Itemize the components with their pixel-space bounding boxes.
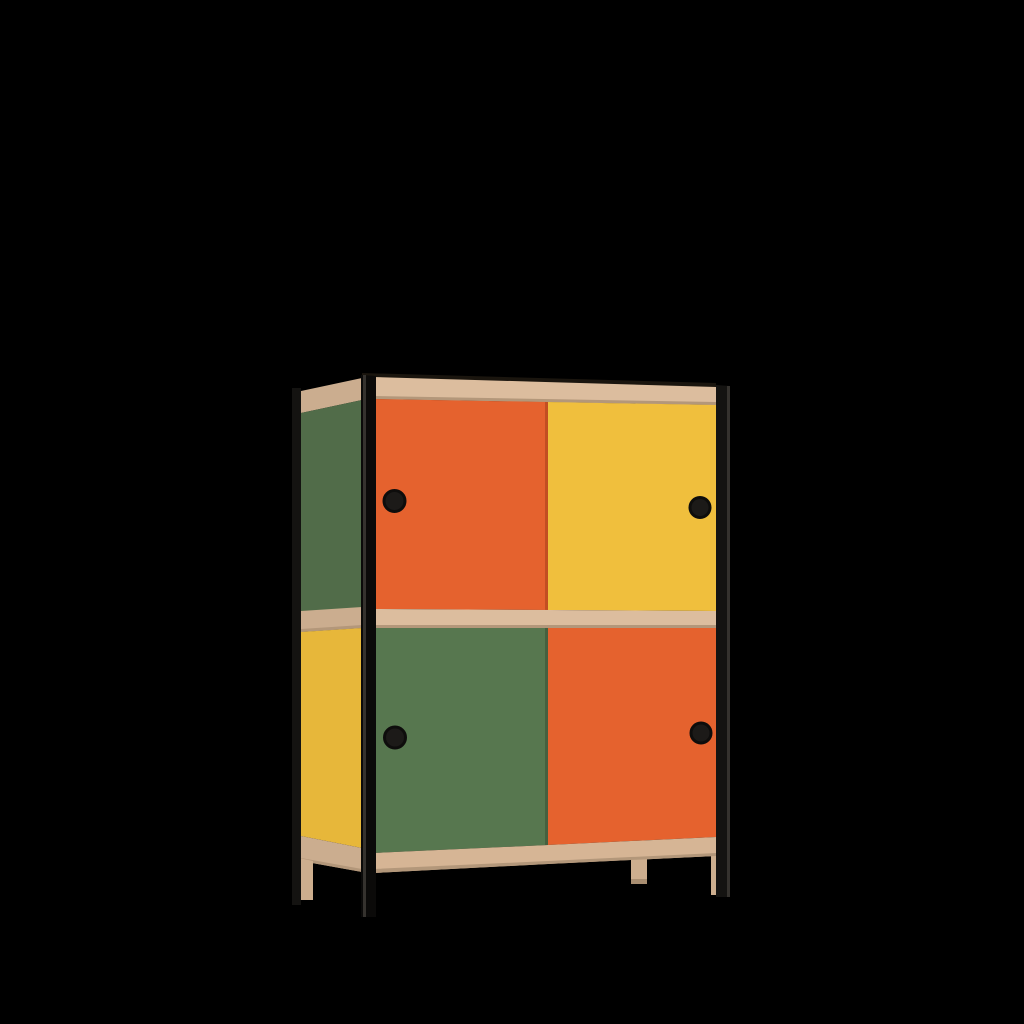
cabinet-render: [0, 0, 1024, 1024]
knob-bottom-right: [691, 723, 711, 743]
knob-bottom-left: [385, 727, 406, 748]
knob-top-right: [690, 498, 710, 518]
side-panel-green: [301, 400, 362, 613]
side-panel-yellow: [301, 628, 362, 848]
front-mid-shelf-edge: [374, 625, 716, 628]
render-canvas: [0, 0, 1024, 1024]
center-wood-leg-shadow: [631, 879, 647, 884]
door-overlap-shadow-bottom: [545, 628, 548, 845]
door-overlap-shadow-top: [545, 402, 548, 610]
front-right-frame-post-highlight: [727, 386, 730, 897]
knob-top-left: [384, 491, 405, 512]
rear-left-wood-leg: [299, 858, 313, 900]
front-left-frame-post-highlight: [363, 375, 366, 917]
rear-left-frame-post: [292, 388, 301, 905]
